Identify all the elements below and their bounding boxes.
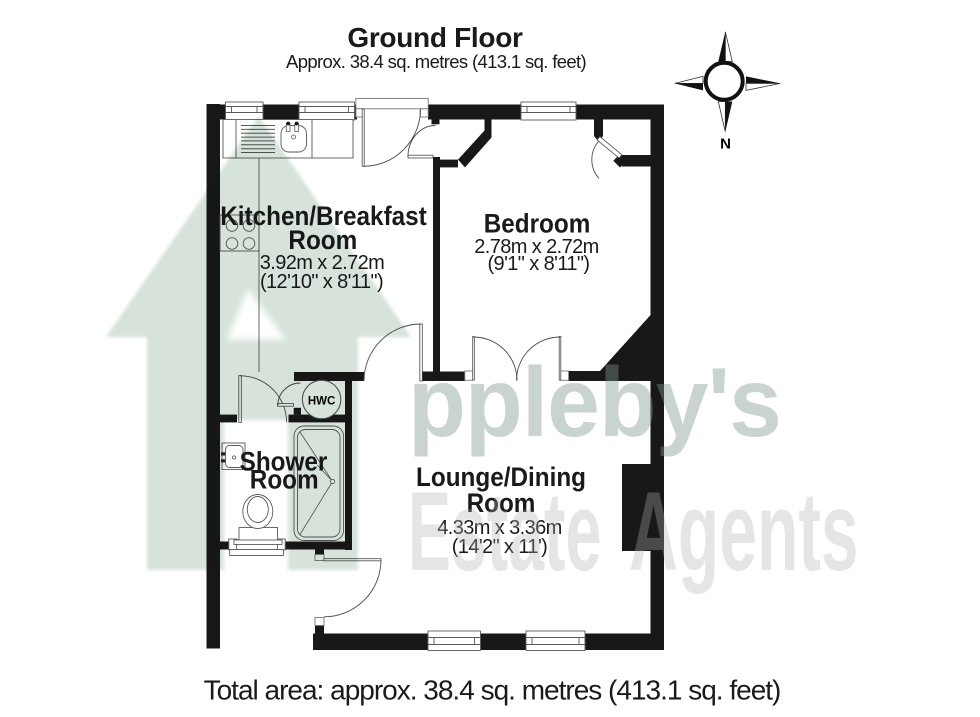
svg-text:N: N — [720, 136, 731, 153]
svg-text:ppleby's: ppleby's — [408, 349, 781, 458]
svg-text:Agents: Agents — [629, 468, 859, 594]
svg-text:Ground Floor: Ground Floor — [347, 22, 523, 53]
svg-text:Estate: Estate — [408, 469, 601, 594]
svg-text:Bedroom: Bedroom — [484, 209, 591, 238]
svg-text:Approx. 38.4 sq. metres (413.1: Approx. 38.4 sq. metres (413.1 sq. feet) — [286, 51, 586, 72]
svg-text:(9'1" x 8'11"): (9'1" x 8'11") — [487, 253, 589, 275]
svg-text:Total area: approx. 38.4 sq. m: Total area: approx. 38.4 sq. metres (413… — [204, 674, 781, 705]
